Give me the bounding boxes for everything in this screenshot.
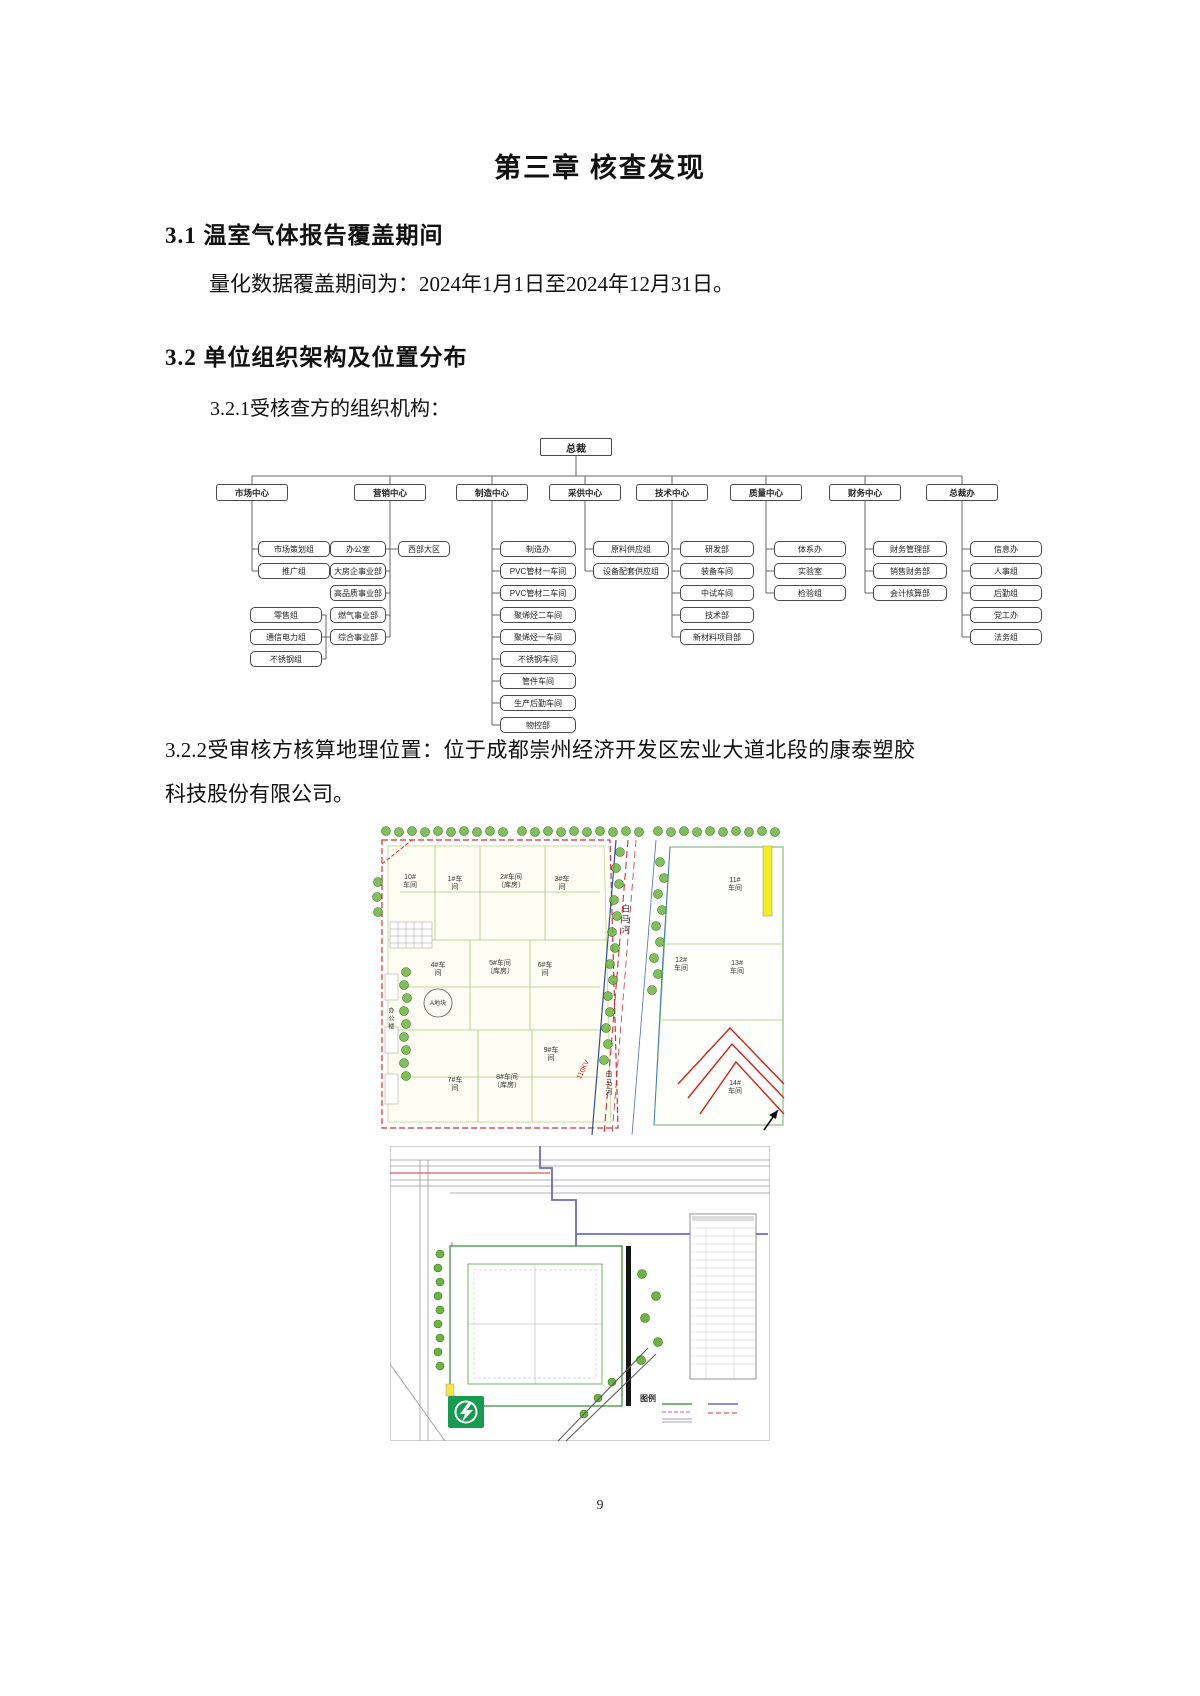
- org-node: 制造办: [500, 541, 576, 557]
- org-node: PVC管材一车间: [500, 563, 576, 579]
- org-node: 会计核算部: [873, 585, 947, 601]
- map-label-workshop-12: 12# 车间: [664, 957, 698, 973]
- org-node-center-manufacture: 制造中心: [456, 484, 528, 501]
- org-node: 高品质事业部: [330, 585, 386, 601]
- page-number: 9: [0, 1498, 1200, 1514]
- org-node: 办公室: [330, 541, 386, 557]
- map-label-workshop-14: 14# 车间: [718, 1080, 752, 1096]
- paragraph-3-2-2: 3.2.2受审核方核算地理位置：位于成都崇州经济开发区宏业大道北段的康泰塑胶科技…: [165, 728, 915, 816]
- paragraph-coverage-period: 量化数据覆盖期间为：2024年1月1日至2024年12月31日。: [165, 268, 1045, 298]
- map-label-workshop-6: 6#车 间: [530, 962, 560, 978]
- map-label-workshop-13: 13# 车间: [720, 960, 754, 976]
- org-node-center-president-office: 总裁办: [926, 484, 998, 501]
- org-node: 管件车间: [500, 673, 576, 689]
- org-node: 体系办: [774, 541, 846, 557]
- org-node: 信息办: [970, 541, 1042, 557]
- org-node-center-quality: 质量中心: [730, 484, 802, 501]
- map-label-workshop-5: 5#车间 （库房）: [473, 960, 527, 976]
- map-label-river-baima-upper: 白马河: [622, 904, 630, 936]
- org-node: 设备配套供应组: [593, 563, 669, 579]
- heading-3-2: 3.2 单位组织架构及位置分布: [165, 338, 468, 372]
- chapter-title: 第三章 核查发现: [0, 146, 1200, 185]
- map-label-workshop-4: 4#车 间: [423, 962, 453, 978]
- org-node: 后勤组: [970, 585, 1042, 601]
- org-node-center-market: 市场中心: [216, 484, 288, 501]
- map-label-workshop-11: 11# 车间: [716, 877, 754, 893]
- map-label-workshop-10: 10# 车间: [392, 874, 428, 890]
- org-chart: 总裁 市场中心 营销中心 制造中心 采供中心 技术中心 质量中心 财务中心 总裁…: [210, 436, 1050, 738]
- site-plan-upper: 10# 车间 1#车 间 2#车间 （库房） 3#车 间 11# 车间 4#车 …: [370, 822, 790, 1135]
- map-label-river-baima-lower: 白马河: [604, 1070, 612, 1097]
- org-node: 不锈钢组: [250, 651, 322, 667]
- org-node: 综合事业部: [330, 629, 386, 645]
- yellow-highlight-strip: [763, 846, 772, 916]
- map-label-workshop-9: 9#车 间: [536, 1047, 566, 1063]
- org-node-center-marketing: 营销中心: [354, 484, 426, 501]
- indicator-table: [690, 1214, 756, 1379]
- org-node: 技术部: [680, 607, 754, 623]
- org-node: 通信电力组: [250, 629, 322, 645]
- org-node: 燃气事业部: [330, 607, 386, 623]
- org-node: 人事组: [970, 563, 1042, 579]
- org-node-root: 总裁: [540, 438, 612, 456]
- org-node: 零售组: [250, 607, 322, 623]
- map-label-workshop-2: 2#车间 （库房）: [484, 874, 538, 890]
- org-node: 财务管理部: [873, 541, 947, 557]
- site-plan-lower-drawing: [390, 1146, 770, 1441]
- org-node: 市场策划组: [258, 541, 330, 557]
- org-node: 党工办: [970, 607, 1042, 623]
- paragraph-3-2-1: 3.2.1受核查方的组织机构：: [210, 392, 1090, 421]
- org-node: 原料供应组: [593, 541, 669, 557]
- site-plan-lower: 图例: [390, 1146, 770, 1441]
- map-legend-title: 图例: [640, 1395, 656, 1403]
- org-node: 聚烯烃一车间: [500, 629, 576, 645]
- org-node: 装备车间: [680, 563, 754, 579]
- org-node: 法务组: [970, 629, 1042, 645]
- org-node: 大房企事业部: [330, 563, 386, 579]
- org-node-west-region: 西部大区: [398, 541, 450, 557]
- org-node: 聚烯烃二车间: [500, 607, 576, 623]
- org-node: 销售财务部: [873, 563, 947, 579]
- document-page: 第三章 核查发现 3.1 温室气体报告覆盖期间 量化数据覆盖期间为：2024年1…: [0, 0, 1200, 1696]
- map-label-plot-a: A地块: [422, 1000, 454, 1008]
- map-label-workshop-3: 3#车 间: [547, 876, 577, 892]
- org-node: PVC管材二车间: [500, 585, 576, 601]
- org-node-center-technology: 技术中心: [636, 484, 708, 501]
- org-node: 推广组: [258, 563, 330, 579]
- map-label-workshop-8: 8#车间 （库房）: [480, 1074, 534, 1090]
- power-company-logo: [448, 1396, 484, 1428]
- org-node: 研发部: [680, 541, 754, 557]
- map-label-office-building: 办公楼: [386, 1007, 394, 1031]
- org-node-center-procurement: 采供中心: [549, 484, 621, 501]
- heading-3-1: 3.1 温室气体报告覆盖期间: [165, 216, 444, 250]
- map-label-workshop-1: 1#车 间: [440, 876, 470, 892]
- org-node: 中试车间: [680, 585, 754, 601]
- map-label-workshop-7: 7#车 间: [440, 1077, 470, 1093]
- org-node: 不锈钢车间: [500, 651, 576, 667]
- org-node-center-finance: 财务中心: [829, 484, 901, 501]
- org-node: 新材料项目部: [680, 629, 754, 645]
- org-node: 生产后勤车间: [500, 695, 576, 711]
- org-node: 实验室: [774, 563, 846, 579]
- org-node: 检验组: [774, 585, 846, 601]
